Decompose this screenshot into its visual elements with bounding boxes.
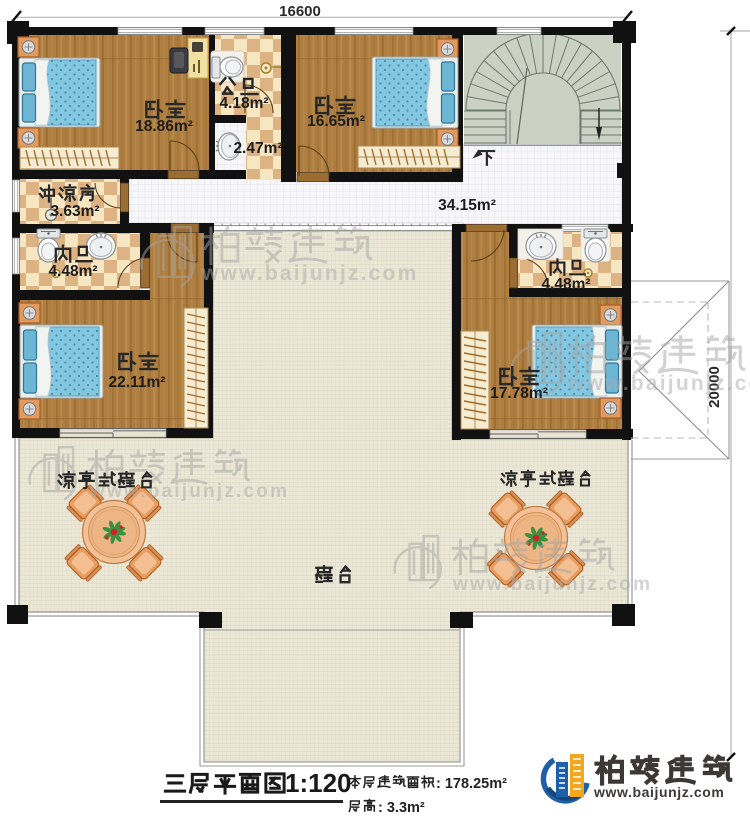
svg-text:17.78m²: 17.78m² — [490, 385, 548, 402]
svg-text:16600: 16600 — [279, 3, 321, 20]
svg-text:4.48m²: 4.48m² — [541, 276, 590, 293]
svg-text:: 178.25m²: : 178.25m² — [436, 776, 507, 792]
svg-text:2.47m²: 2.47m² — [233, 140, 282, 157]
svg-text:: 3.3m²: : 3.3m² — [378, 800, 425, 816]
svg-text:34.15m²: 34.15m² — [438, 197, 496, 214]
svg-text:4.18m²: 4.18m² — [219, 95, 268, 112]
svg-text:16.65m²: 16.65m² — [307, 113, 365, 130]
svg-text:3.63m²: 3.63m² — [50, 203, 99, 220]
svg-text:4.48m²: 4.48m² — [48, 263, 97, 280]
svg-text:1:120: 1:120 — [285, 768, 352, 798]
svg-text:www.baijunjz.com: www.baijunjz.com — [593, 784, 724, 800]
svg-text:22.11m²: 22.11m² — [109, 374, 166, 391]
svg-text:www.baijunjz.com: www.baijunjz.com — [567, 372, 750, 395]
svg-text:www.baijunjz.com: www.baijunjz.com — [201, 262, 418, 285]
svg-text:www.baijunjz.com: www.baijunjz.com — [452, 574, 652, 595]
svg-text:18.86m²: 18.86m² — [135, 118, 193, 135]
